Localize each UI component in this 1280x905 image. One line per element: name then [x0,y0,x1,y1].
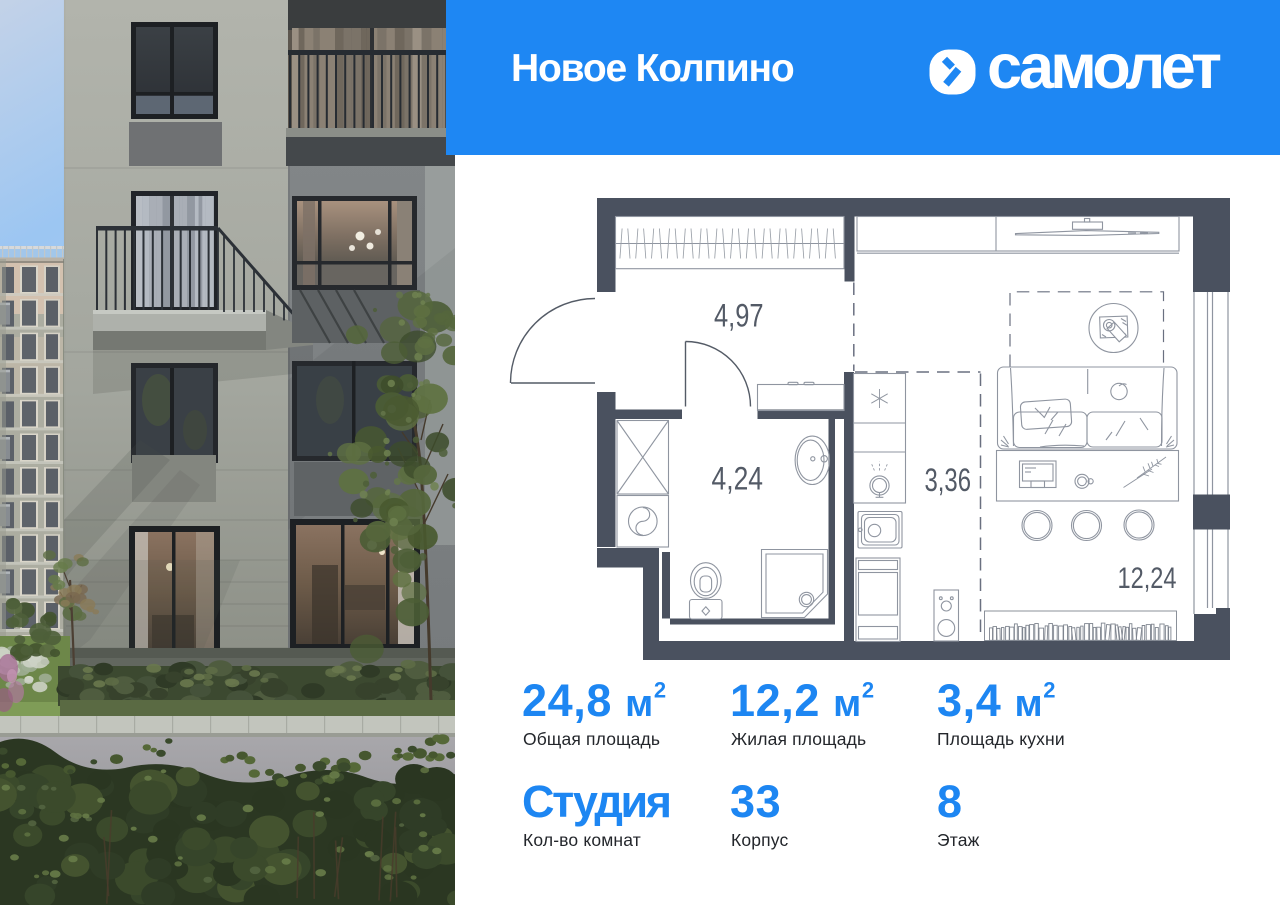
svg-text:12,24: 12,24 [1118,562,1177,595]
svg-text:3,36: 3,36 [925,462,972,498]
svg-text:4,24: 4,24 [712,460,764,496]
svg-text:4,97: 4,97 [714,298,764,334]
